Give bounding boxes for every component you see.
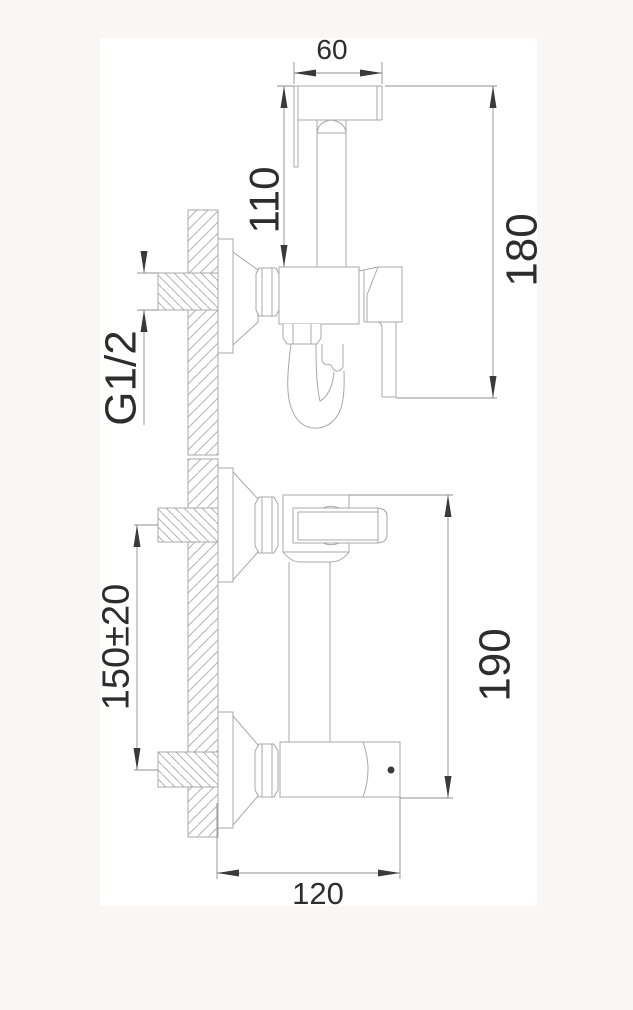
lever-handle — [293, 508, 387, 543]
drawing-svg: 60 110 180 G1/2 — [0, 0, 633, 1010]
technical-drawing: 60 110 180 G1/2 — [0, 0, 633, 1010]
dim-handle-height-label: 110 — [241, 167, 288, 234]
dim-thread-label: G1/2 — [96, 330, 145, 425]
hex-nut — [256, 268, 279, 316]
dim-pipe-spacing-label: 150±20 — [95, 584, 137, 711]
valve-block-bottom — [280, 742, 400, 797]
dim-body-width-label: 120 — [292, 876, 344, 911]
hex-nut-top — [255, 497, 278, 553]
hex-nut-bottom — [255, 744, 278, 797]
dim-body-height-label: 190 — [470, 628, 519, 701]
dim-total-height-label: 180 — [497, 213, 546, 286]
dim-head-width-label: 60 — [316, 34, 347, 65]
set-screw-dot — [388, 767, 395, 774]
